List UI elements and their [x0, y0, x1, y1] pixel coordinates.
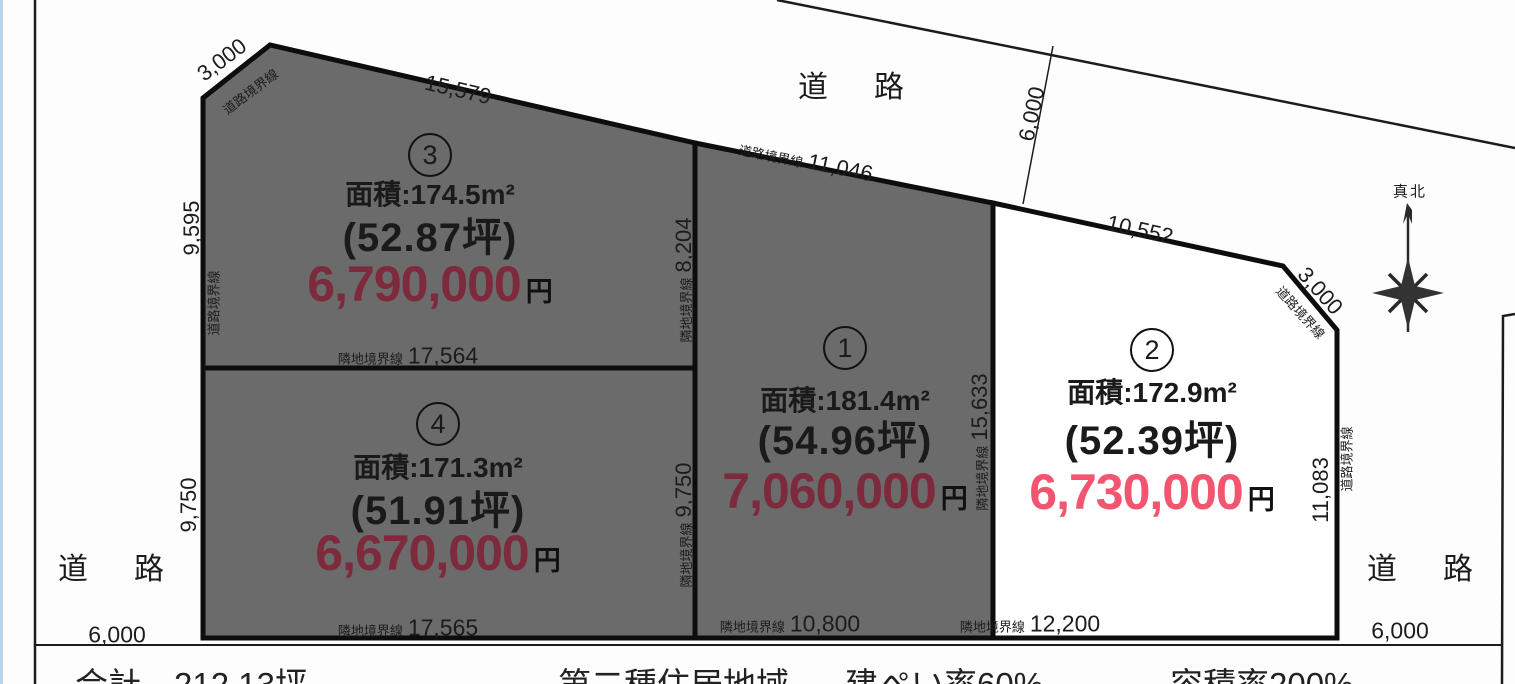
caption-floor-area-ratio: 容積率200%: [1170, 658, 1353, 684]
lot-4-number: 4: [416, 402, 460, 446]
road-label-east: 道 路: [1367, 544, 1481, 588]
lot-2-price: 6,730,000円: [1029, 463, 1274, 521]
dim-lot4-left: 9,750: [176, 477, 202, 532]
boundary-label-lot3-left: 道路境界線: [204, 270, 223, 335]
true-north-label: 真北: [1393, 181, 1427, 202]
lot-2-number: 2: [1130, 328, 1174, 372]
dim-lot2-bottom: 隣地境界線12,200: [960, 611, 1100, 638]
caption-total-tsubo: 合計 212.13坪: [75, 658, 308, 684]
compass-icon: [1372, 203, 1444, 332]
lot-3-price: 6,790,000円: [307, 255, 552, 313]
caption-zoning: 第二種住居地域: [558, 658, 789, 684]
road-label-west: 道 路: [58, 544, 172, 588]
dim-boundary-1-2: 隣地境界線15,633: [967, 373, 993, 510]
dim-east-road-width: 6,000: [1371, 618, 1429, 645]
lot-1-tsubo: (54.96坪): [758, 408, 933, 466]
dim-lot4-bottom: 隣地境界線17,565: [338, 615, 478, 642]
dim-lot3-left: 9,595: [179, 200, 205, 255]
lot-2-tsubo: (52.39坪): [1065, 408, 1240, 466]
lot-3-number: 3: [408, 133, 452, 177]
boundary-label-lot2-right: 道路境界線: [1337, 426, 1356, 491]
dim-lot1-bottom: 隣地境界線10,800: [720, 611, 860, 638]
dim-west-road-width: 6,000: [88, 622, 146, 649]
road-label-north: 道 路: [798, 62, 912, 106]
dim-boundary-4-1: 隣地境界線9,750: [671, 462, 697, 587]
dim-lot2-right: 11,083: [1308, 457, 1334, 523]
east-road-edge-line: [1502, 314, 1515, 684]
lot-1-number: 1: [823, 326, 867, 370]
dim-boundary-3-1: 隣地境界線8,204: [671, 217, 697, 342]
caption-building-coverage: 建ぺい率60%: [845, 658, 1043, 684]
lot-2-area: 面積:172.9m²: [1067, 371, 1237, 411]
land-plot-map: 道 路 道 路 道 路 真北 1 面積:181.4m² (54.96坪) 7,0…: [0, 0, 1515, 684]
lot-4-price: 6,670,000円: [315, 524, 560, 582]
lot-1-price: 7,060,000円: [722, 462, 967, 520]
dim-boundary-3-4: 隣地境界線17,564: [338, 343, 478, 370]
